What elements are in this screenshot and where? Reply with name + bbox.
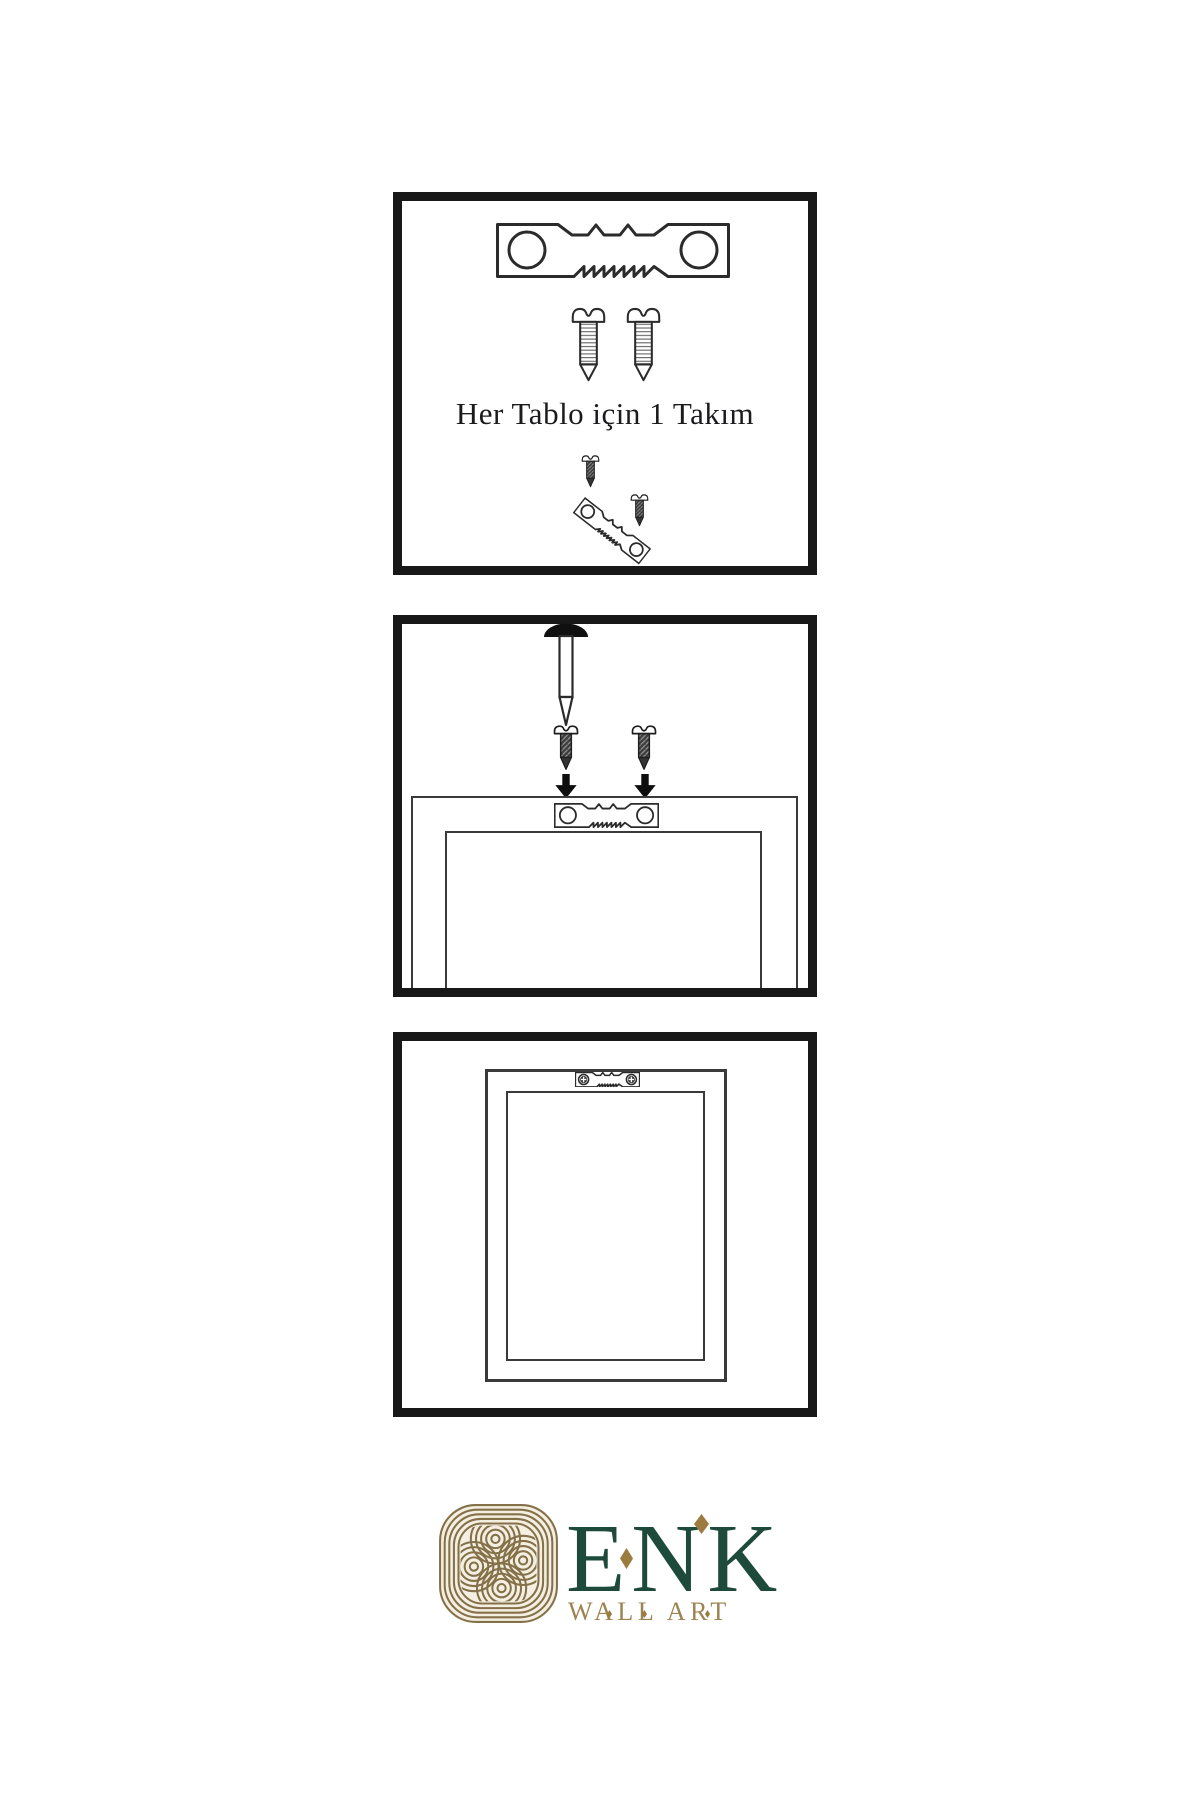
step-2-panel — [393, 615, 817, 997]
dark-screw-icon — [630, 494, 649, 527]
sawtooth-hanger-icon — [554, 803, 659, 828]
knot-logo-icon — [437, 1502, 560, 1625]
frame-back-inner — [506, 1091, 705, 1361]
brand-logo: ENK WALL ART — [437, 1495, 797, 1635]
frame-back-inner — [445, 831, 762, 988]
dark-screw-icon — [629, 725, 659, 771]
instruction-sheet: Her Tablo için 1 Takım — [0, 0, 1200, 1800]
dark-screw-icon — [551, 725, 581, 771]
kit-caption: Her Tablo için 1 Takım — [402, 396, 808, 432]
sawtooth-hanger-icon — [496, 223, 730, 278]
screw-icon — [625, 307, 662, 383]
brand-name: ENK — [566, 1510, 783, 1607]
nail-icon — [543, 623, 589, 727]
dark-screw-icon — [581, 455, 600, 488]
screw-icon — [570, 307, 607, 383]
installed-hanger-icon — [575, 1072, 640, 1087]
step-3-panel — [393, 1032, 817, 1417]
step-1-panel: Her Tablo için 1 Takım — [393, 192, 817, 575]
